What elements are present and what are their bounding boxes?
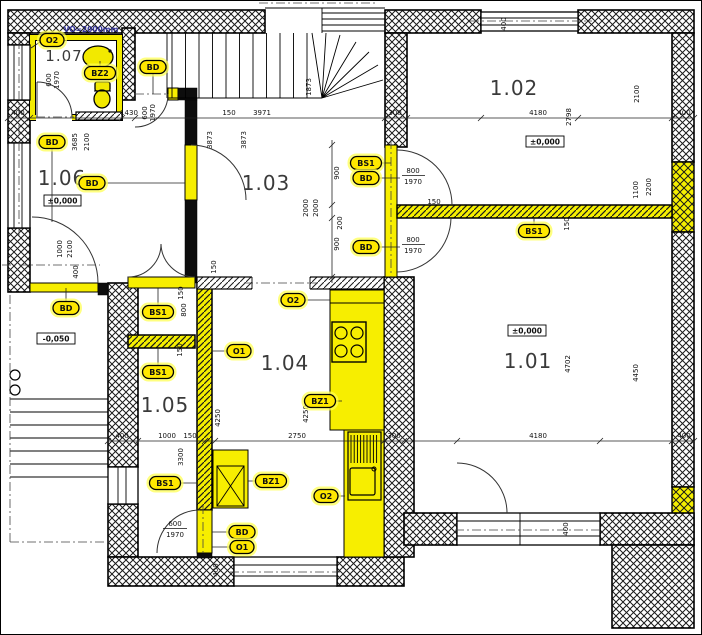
dim-text: 600: [141, 106, 149, 119]
dim-text: 1000: [158, 432, 176, 440]
dim-text: 150: [183, 432, 196, 440]
dim-text: 300: [387, 432, 400, 440]
dim-text: 400: [677, 109, 690, 117]
dim-text: 1970: [149, 104, 157, 122]
dim-text: 3873: [240, 131, 248, 149]
tag-pill-bz1: BZ1: [253, 472, 290, 491]
tag-pill-o2: O2: [37, 31, 67, 50]
burner: [335, 345, 347, 357]
new-wall-105-104: [197, 280, 212, 510]
pill-label: BD: [360, 174, 373, 183]
dim-text: 150: [563, 217, 571, 230]
dim-text: 900: [333, 166, 341, 179]
pill-label: O2: [320, 492, 332, 501]
pill-label: BS1: [357, 159, 375, 168]
tag-pill-bs1: BS1: [140, 303, 177, 322]
dim-text: 1873: [305, 78, 313, 96]
room-label-107: 1.07: [45, 47, 82, 65]
washbasin-faucet: [108, 49, 111, 52]
burner: [335, 327, 347, 339]
dim-text: 2100: [83, 133, 91, 151]
pill-label: BD: [86, 179, 99, 188]
tag-pill-bd: BD: [137, 58, 169, 77]
wall-106-right-upper: [185, 100, 197, 145]
pill-label: BS1: [149, 308, 167, 317]
tag-pill-bz2: BZ2: [82, 64, 119, 83]
dim-text: 400: [72, 265, 80, 278]
pill-label: BD: [60, 304, 73, 313]
dim-text: 150: [222, 109, 235, 117]
dim-text: 4250: [214, 409, 222, 427]
dim-text: 2000: [312, 199, 320, 217]
room-label-103: 1.03: [242, 171, 291, 195]
pill-label: O2: [287, 296, 299, 305]
sink-bowl: [350, 468, 375, 495]
floor-plan: 400 1430 150 3971 300 4180 400 400 1000 …: [0, 0, 702, 635]
new-door-strip-106: [185, 145, 197, 200]
tag-pill-bz1: BZ1: [302, 392, 339, 411]
dim-text: 150: [177, 286, 185, 299]
tag-pill-o2: O2: [278, 291, 308, 310]
wall-bottom-101-left: [404, 513, 457, 545]
dim-text: 1970: [53, 71, 61, 89]
wall-right-mid: [672, 232, 694, 487]
new-sill-terrace-door: [30, 283, 98, 292]
wall-left-3: [8, 228, 30, 292]
dim-text: 1970: [166, 531, 184, 539]
toilet-bowl: [94, 90, 110, 108]
pill-label: BD: [360, 243, 373, 252]
burner: [351, 345, 363, 357]
dim-text: 400: [115, 432, 128, 440]
wall-cap-105: [197, 553, 212, 558]
tag-pill-bd: BD: [36, 133, 68, 152]
dim-text: 4180: [529, 109, 547, 117]
wall-right-new-opening: [672, 162, 694, 232]
tag-pill-bs1: BS1: [147, 474, 184, 493]
window-105: [108, 467, 138, 504]
room-label-104: 1.04: [261, 351, 310, 375]
dim-text: 2750: [288, 432, 306, 440]
level-terrace: -0,050: [43, 335, 70, 344]
level-102: ±0,000: [530, 138, 560, 147]
bath-door-opening: [36, 110, 72, 122]
dim-text: 800: [180, 303, 188, 316]
dim-text: 400: [562, 522, 570, 535]
new-door-strip-105: [197, 510, 212, 553]
window-kitchen: [234, 557, 337, 586]
bath-wall-hatched: [76, 112, 122, 120]
pill-label: BS1: [149, 368, 167, 377]
dim-text: 3300: [177, 448, 185, 466]
window-top: [481, 12, 578, 31]
dim-text: 4450: [632, 364, 640, 382]
wall-bath-pier: [122, 28, 135, 100]
dim-text: 400: [212, 563, 220, 576]
tag-pill-o1: O1: [224, 342, 254, 361]
pill-label: BD: [236, 528, 249, 537]
wall-stair-right: [385, 33, 407, 147]
wall-106-bottom: [98, 283, 108, 295]
dim-text: 1970: [404, 247, 422, 255]
dim-text: 400: [11, 109, 24, 117]
level-101: ±0,000: [512, 327, 542, 336]
dim-text: 600: [168, 520, 181, 528]
dim-text: 3873: [206, 131, 214, 149]
wall-top-left: [8, 10, 265, 33]
wall-pier-bottom-right: [612, 545, 694, 628]
dim-text: 150: [176, 343, 184, 356]
window-101: [457, 513, 600, 545]
pill-label: BD: [147, 63, 160, 72]
wall-right-upper: [672, 33, 694, 162]
dim-text: 400: [500, 17, 508, 30]
wall-top-mid: [385, 10, 481, 33]
room-label-101: 1.01: [504, 349, 553, 373]
dim-text: 1970: [404, 178, 422, 186]
dim-text: 1430: [120, 109, 138, 117]
vo-note: VO=2000mm: [64, 25, 119, 34]
wall-left-corner: [108, 504, 138, 557]
burner: [351, 327, 363, 339]
pill-label: O1: [233, 347, 246, 356]
wall-bottom-right: [600, 513, 694, 545]
new-wall-102-101: [397, 205, 672, 218]
tag-pill-bs1: BS1: [516, 222, 553, 241]
dim-text: 3685: [71, 133, 79, 151]
dim-text: 2200: [645, 178, 653, 196]
dim-text: 4180: [529, 432, 547, 440]
tag-pill-bd: BD: [350, 238, 382, 257]
tag-pill-bd: BD: [350, 169, 382, 188]
tag-pill-bs1: BS1: [140, 363, 177, 382]
dim-text: 2000: [302, 199, 310, 217]
dim-text: 150: [210, 260, 218, 273]
pill-label: BD: [46, 138, 59, 147]
dim-text: 150: [427, 198, 440, 206]
dim-text: 1100: [632, 181, 640, 199]
dim-text: 400: [677, 432, 690, 440]
dim-text: 2100: [66, 240, 74, 258]
appliance-bz1: [213, 450, 248, 508]
wall-106-right-lower: [185, 200, 197, 283]
dim-text: 800: [406, 236, 419, 244]
dim-text: 4702: [564, 355, 572, 373]
dim-text: 2100: [633, 85, 641, 103]
pill-label: BS1: [525, 227, 543, 236]
pill-label: BZ2: [91, 69, 108, 78]
dim-text: 800: [406, 167, 419, 175]
wall-bottom-kitchen-right: [337, 557, 404, 586]
pill-label: O1: [236, 543, 249, 552]
pill-label: BZ1: [311, 397, 329, 406]
pill-label: BZ1: [262, 477, 280, 486]
room-label-102: 1.02: [490, 76, 539, 100]
wall-top-right: [578, 10, 694, 33]
pill-label: O2: [46, 36, 58, 45]
tag-pill-o2: O2: [311, 487, 341, 506]
dim-text: 900: [333, 237, 341, 250]
dim-text: 300: [388, 109, 401, 117]
new-wall-closet-bottom: [128, 335, 195, 348]
tag-pill-bd: BD: [50, 299, 82, 318]
dim-text: 200: [336, 216, 344, 229]
tag-pill-o1: O1: [227, 538, 257, 557]
dim-text: 3971: [253, 109, 271, 117]
pill-label: BS1: [156, 479, 174, 488]
dim-text: 1000: [56, 240, 64, 258]
dim-text: 2798: [565, 108, 573, 126]
dim-text: 600: [45, 73, 53, 86]
floor-plan-drawing: 400 1430 150 3971 300 4180 400 400 1000 …: [0, 0, 702, 635]
tag-pill-bd: BD: [76, 174, 108, 193]
room-label-105: 1.05: [141, 393, 190, 417]
